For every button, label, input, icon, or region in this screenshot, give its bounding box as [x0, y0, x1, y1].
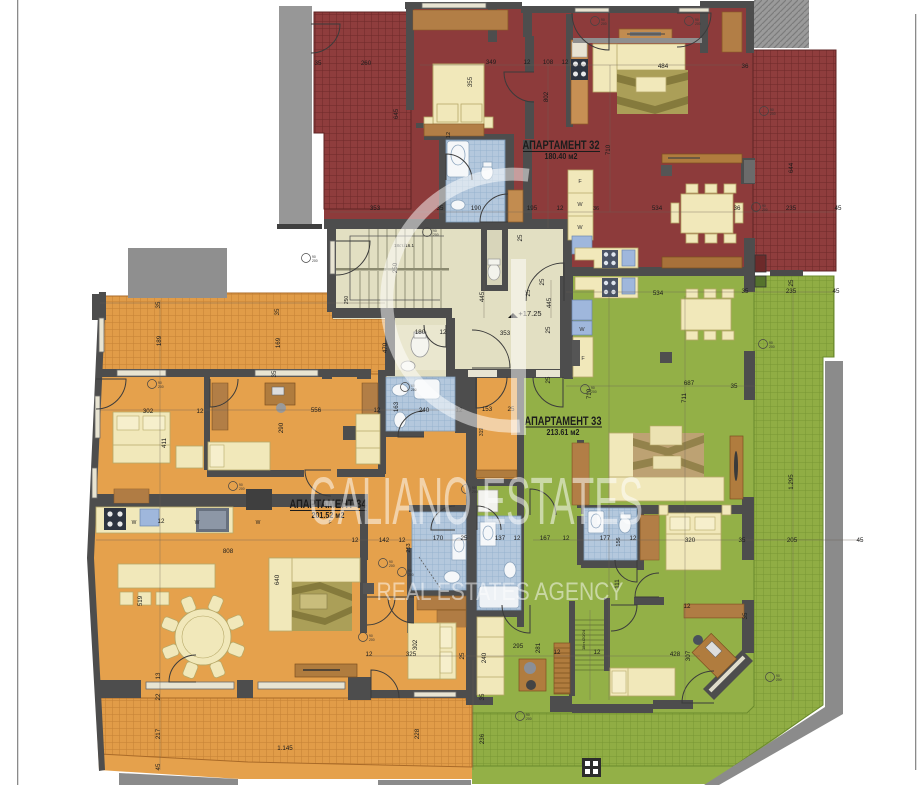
- svg-text:250: 250: [344, 296, 350, 305]
- svg-text:200: 200: [601, 22, 607, 26]
- svg-text:640: 640: [274, 574, 281, 585]
- svg-text:W: W: [132, 520, 137, 526]
- svg-text:25: 25: [517, 234, 524, 241]
- svg-text:W: W: [579, 327, 585, 333]
- svg-text:REAL ESTATES AGENCY: REAL ESTATES AGENCY: [377, 578, 624, 606]
- svg-text:25: 25: [539, 278, 546, 285]
- svg-text:45: 45: [155, 763, 162, 770]
- svg-text:АПАРТАМЕНТ 33: АПАРТАМЕНТ 33: [525, 416, 602, 428]
- svg-text:45: 45: [833, 288, 840, 295]
- svg-text:710: 710: [605, 144, 612, 155]
- svg-text:295: 295: [513, 643, 524, 650]
- svg-text:302: 302: [412, 639, 419, 650]
- svg-text:556: 556: [311, 407, 322, 414]
- svg-text:W: W: [577, 225, 583, 231]
- svg-text:36: 36: [734, 205, 741, 212]
- svg-text:411: 411: [161, 438, 168, 448]
- svg-text:445: 445: [479, 291, 486, 302]
- svg-text:200: 200: [776, 678, 782, 682]
- svg-text:236: 236: [479, 733, 486, 744]
- svg-text:12: 12: [366, 651, 373, 658]
- svg-text:12: 12: [524, 59, 531, 66]
- svg-text:12: 12: [557, 205, 564, 212]
- svg-text:687: 687: [684, 380, 695, 387]
- svg-text:35: 35: [731, 383, 738, 390]
- svg-text:534: 534: [653, 290, 664, 297]
- svg-text:228: 228: [414, 728, 421, 739]
- svg-text:163: 163: [393, 401, 400, 412]
- svg-text:35: 35: [271, 370, 278, 377]
- svg-text:12: 12: [197, 408, 204, 415]
- svg-text:АПАРТАМЕНТ 32: АПАРТАМЕНТ 32: [523, 140, 600, 152]
- svg-text:GALIANO ESTATES: GALIANO ESTATES: [309, 464, 643, 539]
- svg-text:307: 307: [685, 650, 692, 661]
- svg-text:25: 25: [545, 376, 552, 383]
- svg-text:18ст./20/24: 18ст./20/24: [581, 629, 586, 650]
- svg-text:W: W: [577, 202, 583, 208]
- svg-text:200: 200: [312, 259, 318, 263]
- svg-text:302: 302: [143, 408, 154, 415]
- svg-text:190: 190: [471, 205, 482, 212]
- svg-text:12: 12: [594, 649, 601, 656]
- svg-text:235: 235: [786, 205, 797, 212]
- svg-text:213.61 м2: 213.61 м2: [547, 428, 580, 437]
- svg-text:12: 12: [554, 649, 561, 656]
- svg-text:200: 200: [433, 233, 439, 237]
- svg-text:W: W: [256, 520, 261, 526]
- svg-text:45: 45: [835, 205, 842, 212]
- svg-text:711: 711: [681, 393, 688, 403]
- svg-text:519: 519: [137, 595, 144, 606]
- svg-text:200: 200: [158, 385, 164, 389]
- svg-text:12: 12: [158, 518, 165, 525]
- svg-text:200: 200: [408, 573, 414, 577]
- svg-text:200: 200: [591, 390, 597, 394]
- svg-text:320: 320: [685, 537, 696, 544]
- svg-text:22: 22: [155, 693, 162, 700]
- svg-text:200: 200: [369, 638, 375, 642]
- svg-text:180: 180: [415, 329, 426, 336]
- svg-text:217: 217: [155, 728, 162, 739]
- svg-text:12: 12: [562, 59, 569, 66]
- svg-text:808: 808: [223, 548, 234, 555]
- svg-text:445: 445: [546, 297, 553, 308]
- svg-text:189: 189: [156, 335, 163, 346]
- svg-text:195: 195: [527, 205, 538, 212]
- svg-text:35: 35: [315, 60, 322, 67]
- svg-text:35: 35: [155, 301, 162, 308]
- svg-text:12: 12: [446, 132, 452, 138]
- svg-text:153: 153: [482, 406, 493, 413]
- svg-text:12: 12: [440, 329, 447, 336]
- svg-text:35: 35: [742, 612, 749, 619]
- svg-text:35: 35: [479, 693, 486, 700]
- svg-text:1.295: 1.295: [788, 474, 795, 490]
- svg-text:36: 36: [742, 63, 749, 70]
- svg-text:260: 260: [361, 60, 372, 67]
- svg-text:534: 534: [652, 205, 663, 212]
- svg-text:353: 353: [370, 205, 381, 212]
- svg-text:13: 13: [155, 672, 162, 679]
- svg-text:45: 45: [857, 537, 864, 544]
- svg-text:200: 200: [389, 564, 395, 568]
- svg-text:200: 200: [695, 22, 701, 26]
- svg-text:180.40 м2: 180.40 м2: [545, 152, 578, 161]
- svg-text:281: 281: [535, 642, 542, 653]
- svg-text:200: 200: [769, 345, 775, 349]
- svg-text:325: 325: [406, 651, 417, 658]
- svg-text:25: 25: [525, 289, 532, 296]
- svg-text:25: 25: [545, 326, 552, 333]
- svg-text:240: 240: [419, 407, 430, 414]
- svg-text:802: 802: [543, 91, 550, 102]
- svg-text:428: 428: [670, 651, 681, 658]
- svg-text:36: 36: [593, 206, 599, 212]
- svg-text:25: 25: [788, 279, 795, 286]
- svg-text:35: 35: [742, 288, 749, 295]
- svg-text:1.145: 1.145: [277, 745, 293, 752]
- svg-text:W: W: [195, 520, 200, 526]
- svg-text:25: 25: [459, 652, 466, 659]
- svg-text:200: 200: [239, 487, 245, 491]
- svg-text:200: 200: [526, 717, 532, 721]
- svg-text:253: 253: [406, 543, 412, 552]
- svg-text:235: 235: [786, 288, 797, 295]
- svg-text:200: 200: [770, 112, 776, 116]
- svg-text:645: 645: [393, 108, 400, 119]
- svg-text:35: 35: [274, 308, 281, 315]
- svg-text:355: 355: [467, 76, 474, 87]
- svg-text:353: 353: [500, 330, 511, 337]
- svg-text:12: 12: [374, 407, 381, 414]
- svg-text:200: 200: [762, 208, 768, 212]
- svg-text:240: 240: [481, 652, 488, 663]
- svg-text:484: 484: [658, 63, 669, 70]
- svg-text:290: 290: [278, 422, 285, 433]
- svg-text:349: 349: [486, 59, 497, 66]
- svg-text:108: 108: [543, 59, 554, 66]
- svg-text:12: 12: [684, 603, 691, 610]
- svg-text:169: 169: [275, 337, 282, 348]
- svg-text:35: 35: [739, 537, 746, 544]
- svg-text:205: 205: [787, 537, 798, 544]
- svg-text:644: 644: [788, 162, 795, 173]
